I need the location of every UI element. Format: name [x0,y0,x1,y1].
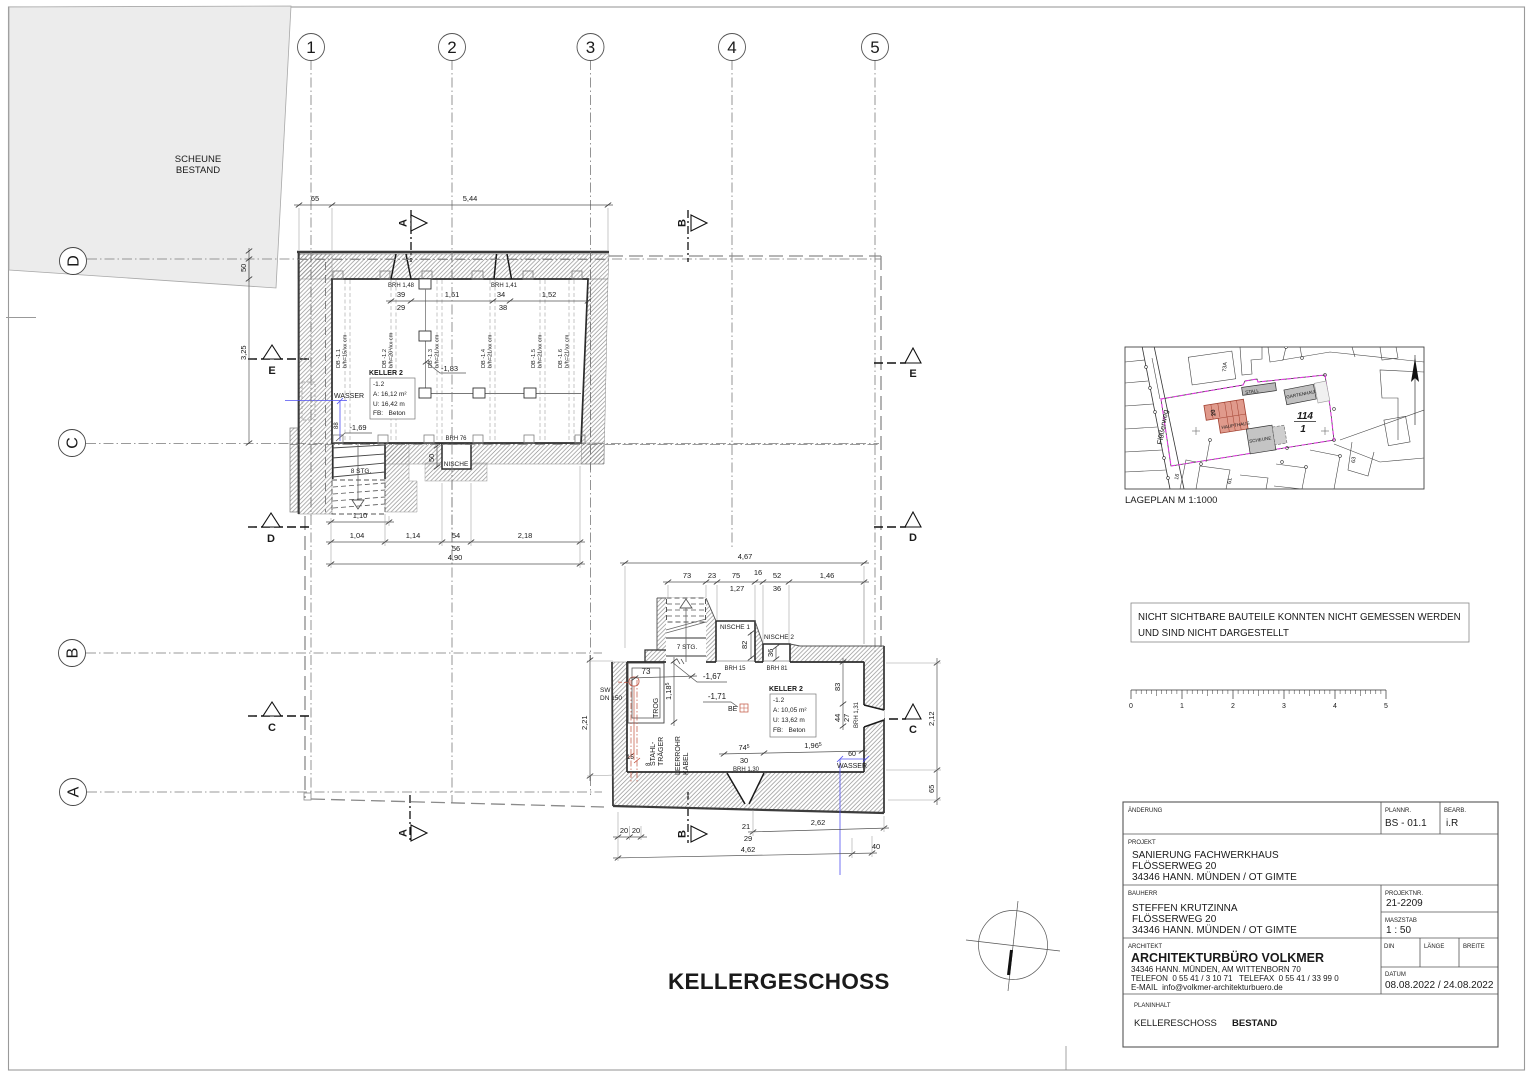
svg-text:WASSER: WASSER [837,763,867,770]
svg-text:KABEL: KABEL [683,752,690,775]
svg-text:4,62: 4,62 [741,845,756,854]
svg-text:LÄNGE: LÄNGE [1424,943,1444,950]
svg-text:TROG: TROG [653,698,660,718]
svg-text:39: 39 [397,290,405,299]
svg-text:50: 50 [239,264,248,272]
svg-text:38: 38 [499,303,507,312]
svg-text:BESTAND: BESTAND [176,165,220,176]
svg-text:8 STG.: 8 STG. [351,468,372,475]
svg-text:LEERROHR: LEERROHR [675,736,682,775]
svg-text:NISCHE 1: NISCHE 1 [720,624,750,631]
svg-text:1,10: 1,10 [353,511,368,520]
svg-text:DB -1.4: DB -1.4 [481,349,487,368]
svg-text:A: 16,12 m²: A: 16,12 m² [373,391,407,398]
svg-text:WASSER: WASSER [334,393,364,400]
svg-text:21: 21 [742,822,750,831]
svg-text:NISCHE: NISCHE [444,461,469,468]
svg-text:0: 0 [1129,703,1133,710]
svg-text:b/h=20¹/xx cm: b/h=20¹/xx cm [389,332,395,368]
svg-text:34346 HANN. MÜNDEN / OT GIMTE: 34346 HANN. MÜNDEN / OT GIMTE [1132,871,1297,883]
svg-text:-1,83: -1,83 [441,364,458,373]
svg-text:5,44: 5,44 [463,194,478,203]
svg-text:-1.2: -1.2 [373,381,385,388]
svg-text:-1.2: -1.2 [773,697,785,704]
svg-text:DATUM: DATUM [1385,972,1406,978]
svg-text:BRH 1,41: BRH 1,41 [491,283,518,289]
svg-text:-1,71: -1,71 [708,692,727,701]
svg-text:PROJEKTNR.: PROJEKTNR. [1385,891,1423,897]
svg-text:1,46: 1,46 [820,571,835,580]
svg-text:FLÖSSERWEG 20: FLÖSSERWEG 20 [1132,860,1217,872]
svg-text:FB: Beton: FB: Beton [773,727,806,734]
svg-text:DB -1.6: DB -1.6 [558,349,564,368]
svg-text:73A: 73A [1222,362,1229,373]
svg-text:BRH 81: BRH 81 [766,666,788,672]
svg-text:KELLERGESCHOSS: KELLERGESCHOSS [668,969,890,994]
svg-text:44: 44 [833,714,842,722]
svg-text:b/h=15/xx cm: b/h=15/xx cm [343,334,349,368]
svg-text:08.08.2022 / 24.08.2022: 08.08.2022 / 24.08.2022 [1385,980,1494,991]
svg-text:TELEFON 0 55 41 / 3 10 71 T: TELEFON 0 55 41 / 3 10 71 TELEFAX 0 55 4… [1131,974,1339,983]
svg-text:16: 16 [1174,473,1181,480]
svg-text:3: 3 [1282,703,1286,710]
svg-text:C: C [65,437,82,449]
svg-text:STEFFEN KRUTZINNA: STEFFEN KRUTZINNA [1132,903,1238,914]
svg-text:16: 16 [754,568,762,577]
svg-text:b/h=21/xx cm: b/h=21/xx cm [538,334,544,368]
svg-text:36: 36 [773,584,781,593]
svg-text:PLANNR.: PLANNR. [1385,808,1411,814]
svg-text:BRH 1,48: BRH 1,48 [388,283,415,289]
svg-text:4: 4 [727,38,736,57]
svg-text:ÄNDERUNG: ÄNDERUNG [1128,807,1163,814]
svg-text:BRH 76: BRH 76 [445,436,467,442]
svg-text:54: 54 [452,531,460,540]
svg-text:FB: Beton: FB: Beton [373,410,406,417]
svg-text:1,04: 1,04 [350,531,365,540]
svg-text:20: 20 [632,826,640,835]
svg-text:NICHT SICHTBARE BAUTEILE KONNT: NICHT SICHTBARE BAUTEILE KONNTEN NICHT G… [1138,612,1461,623]
svg-text:BE: BE [728,706,738,713]
svg-text:C: C [909,724,917,736]
svg-text:3,25: 3,25 [239,345,248,360]
svg-text:1,14: 1,14 [406,531,421,540]
svg-text:DB -1.3: DB -1.3 [428,349,434,368]
svg-text:5: 5 [870,38,879,57]
svg-text:DB -1.2: DB -1.2 [382,349,388,368]
svg-text:KELLER 2: KELLER 2 [369,370,403,377]
svg-text:B: B [677,219,689,227]
svg-text:1: 1 [1300,424,1306,435]
svg-text:b/h=21/xx cm: b/h=21/xx cm [565,334,571,368]
svg-text:88: 88 [334,422,340,429]
svg-text:TRÄGER: TRÄGER [657,737,665,766]
svg-text:2: 2 [447,38,456,57]
svg-text:BEARB.: BEARB. [1444,808,1466,814]
svg-text:SW: SW [600,687,611,694]
svg-text:E: E [268,365,275,377]
svg-text:LAGEPLAN M 1:1000: LAGEPLAN M 1:1000 [1125,495,1217,506]
svg-text:SANIERUNG FACHWERKHAUS: SANIERUNG FACHWERKHAUS [1132,850,1279,861]
svg-text:27: 27 [842,714,851,722]
svg-text:4,90: 4,90 [448,553,463,562]
svg-text:BRH 1,31: BRH 1,31 [854,701,860,728]
svg-text:21-2209: 21-2209 [1386,898,1423,909]
svg-text:A: 10,05 m²: A: 10,05 m² [773,707,807,714]
svg-text:4,67: 4,67 [738,552,753,561]
svg-text:63: 63 [1351,457,1358,464]
svg-text:61: 61 [1227,478,1234,485]
svg-text:BESTAND: BESTAND [1232,1018,1277,1029]
svg-text:34346 HANN. MÜNDEN / OT GIMTE: 34346 HANN. MÜNDEN / OT GIMTE [1132,924,1297,936]
svg-text:50: 50 [427,454,436,462]
svg-text:2,62: 2,62 [811,818,826,827]
svg-text:5: 5 [1384,703,1388,710]
svg-text:DB -1.1: DB -1.1 [336,349,342,368]
svg-text:BAUHERR: BAUHERR [1128,891,1158,897]
svg-text:23: 23 [708,571,716,580]
svg-text:20: 20 [620,826,628,835]
svg-text:BRH 1,30: BRH 1,30 [733,767,760,773]
svg-text:b/h=21/xx cm: b/h=21/xx cm [488,334,494,368]
svg-text:60: 60 [848,751,856,758]
svg-text:65: 65 [311,194,319,203]
svg-text:40: 40 [872,842,880,851]
svg-text:36: 36 [766,649,775,657]
svg-text:SCHEUNE: SCHEUNE [175,154,221,165]
svg-text:D: D [267,533,275,545]
svg-text:BS - 01.1: BS - 01.1 [1385,818,1427,829]
svg-text:i.R: i.R [1446,818,1458,829]
svg-text:3: 3 [586,38,595,57]
svg-text:b/h=21/xx cm: b/h=21/xx cm [435,334,441,368]
svg-text:56: 56 [452,544,460,553]
svg-text:DB -1.5: DB -1.5 [531,349,537,368]
svg-text:-1,67: -1,67 [703,672,722,681]
svg-text:30: 30 [740,756,748,765]
svg-text:34346 HANN. MÜNDEN, AM WITTENB: 34346 HANN. MÜNDEN, AM WITTENBORN 70 [1131,965,1301,974]
svg-text:7 STG.: 7 STG. [677,644,698,651]
svg-text:A: A [398,219,410,227]
svg-text:UND SIND NICHT DARGESTELLT: UND SIND NICHT DARGESTELLT [1138,628,1289,639]
svg-text:A: A [398,829,410,837]
svg-text:C: C [268,722,276,734]
svg-text:2,21: 2,21 [580,715,589,730]
svg-text:1,27: 1,27 [730,584,745,593]
svg-text:114: 114 [1297,411,1313,422]
svg-text:FLÖSSERWEG 20: FLÖSSERWEG 20 [1132,913,1217,925]
svg-text:KELLERESCHOSS: KELLERESCHOSS [1134,1018,1217,1029]
svg-text:U: 16,42 m: U: 16,42 m [373,401,405,408]
svg-text:U: 13,62 m: U: 13,62 m [773,717,805,724]
svg-text:NISCHE 2: NISCHE 2 [764,634,794,641]
svg-text:-1,69: -1,69 [349,423,366,432]
svg-text:15: 15 [627,755,634,761]
svg-text:PLANINHALT: PLANINHALT [1134,1003,1171,1009]
svg-text:B: B [65,648,82,659]
svg-text:73: 73 [683,571,691,580]
svg-text:BRH 15: BRH 15 [724,666,746,672]
svg-text:65: 65 [927,785,936,793]
svg-text:2,18: 2,18 [518,531,533,540]
svg-text:E: E [909,368,916,380]
svg-text:1 : 50: 1 : 50 [1386,925,1411,936]
svg-text:PROJEKT: PROJEKT [1128,840,1156,846]
svg-text:D: D [66,255,83,267]
svg-text:KELLER 2: KELLER 2 [769,686,803,693]
svg-text:82: 82 [740,641,749,649]
svg-text:BREITE: BREITE [1463,944,1485,950]
svg-text:1,52: 1,52 [542,290,557,299]
svg-text:A: A [66,786,83,797]
svg-text:75: 75 [732,571,740,580]
svg-text:4: 4 [1333,703,1337,710]
svg-text:83: 83 [833,683,842,691]
svg-text:52: 52 [773,571,781,580]
svg-text:MASZSTAB: MASZSTAB [1385,918,1417,924]
svg-text:29: 29 [397,303,405,312]
svg-text:73: 73 [642,667,651,676]
svg-text:2,12: 2,12 [927,711,936,726]
svg-text:29: 29 [744,834,752,843]
svg-text:B: B [677,830,689,838]
svg-text:ARCHITEKTURBÜRO VOLKMER: ARCHITEKTURBÜRO VOLKMER [1131,950,1324,965]
svg-text:E-MAIL info@volkmer-architekt: E-MAIL info@volkmer-architekturbuero.de [1131,983,1283,992]
svg-text:1: 1 [306,38,315,57]
svg-text:1: 1 [1180,703,1184,710]
svg-text:DIN: DIN [1384,944,1394,950]
svg-text:D: D [909,532,917,544]
svg-text:DN 150: DN 150 [600,695,622,702]
svg-text:34: 34 [497,290,505,299]
svg-text:2: 2 [1231,703,1235,710]
svg-text:STAHL-: STAHL- [650,741,657,766]
svg-text:ARCHITEKT: ARCHITEKT [1128,944,1162,950]
